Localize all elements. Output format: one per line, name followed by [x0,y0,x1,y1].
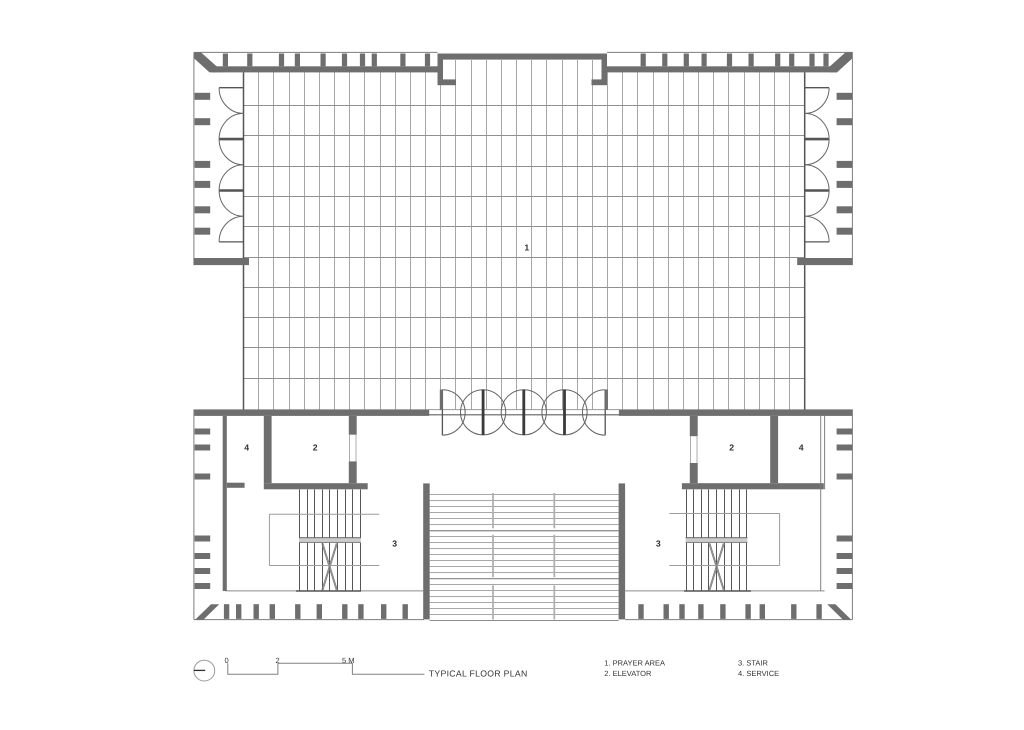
svg-text:2: 2 [729,442,734,452]
svg-text:4: 4 [244,442,249,452]
svg-text:1. PRAYER AREA: 1. PRAYER AREA [604,659,665,668]
svg-text:3: 3 [392,539,397,549]
svg-text:4. SERVICE: 4. SERVICE [738,669,779,678]
svg-text:1: 1 [524,243,529,253]
svg-text:4: 4 [799,442,804,452]
svg-text:3: 3 [656,539,661,549]
svg-text:2: 2 [313,442,318,452]
svg-text:2. ELEVATOR: 2. ELEVATOR [604,669,652,678]
svg-text:TYPICAL FLOOR PLAN: TYPICAL FLOOR PLAN [429,669,528,679]
svg-text:5 M: 5 M [342,656,355,665]
svg-text:0: 0 [225,656,229,665]
svg-text:3. STAIR: 3. STAIR [738,659,768,668]
svg-text:2: 2 [276,656,280,665]
